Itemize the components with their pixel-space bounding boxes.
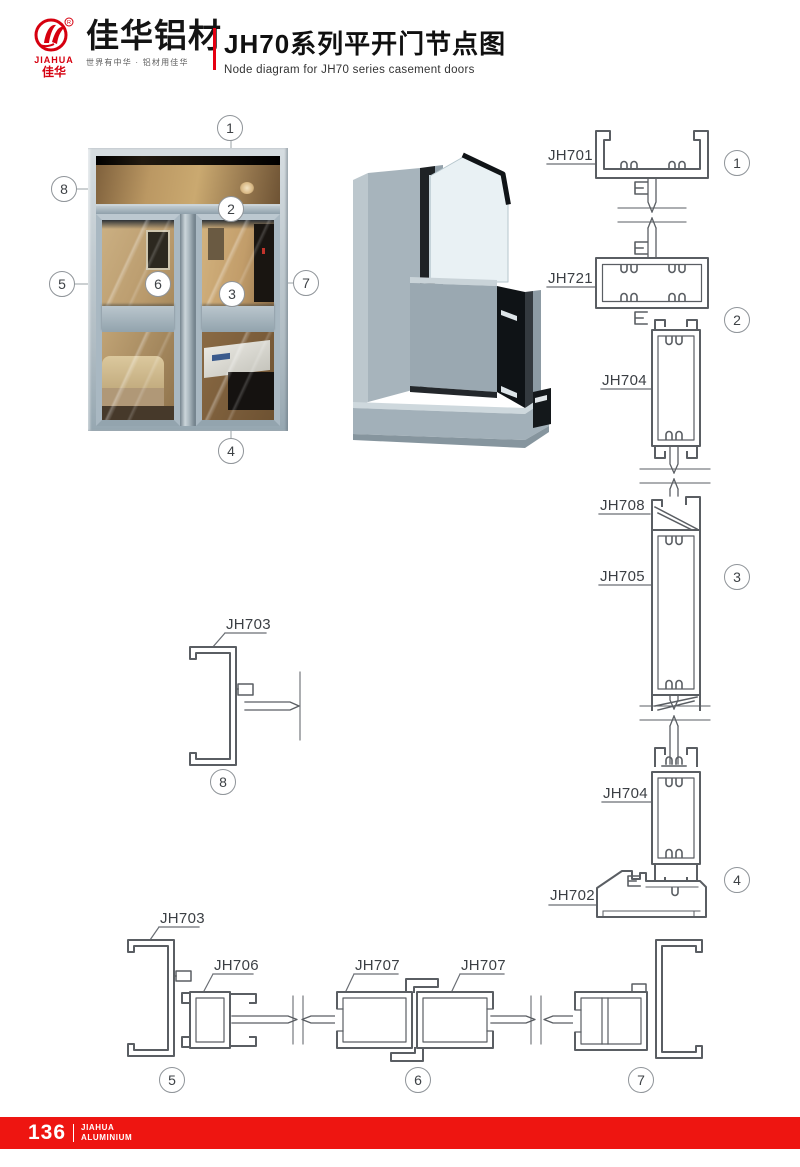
profile-label-jh703-mid: JH703 xyxy=(226,616,271,633)
left-mid-rail xyxy=(102,306,174,332)
transom-bevel xyxy=(96,156,280,165)
callout-2-section: 2 xyxy=(724,307,750,333)
footer-brand-line2: ALUMINIUM xyxy=(81,1133,132,1143)
footer-brand: JIAHUA ALUMINIUM xyxy=(81,1123,132,1143)
callout-3-section: 3 xyxy=(724,564,750,590)
callout-1-photo: 1 xyxy=(217,115,243,141)
callout-2-photo: 2 xyxy=(218,196,244,222)
callout-8-section: 8 xyxy=(210,769,236,795)
profile-label-jh704-lower: JH704 xyxy=(603,785,648,802)
callout-7-photo: 7 xyxy=(293,270,319,296)
profile-label-jh705: JH705 xyxy=(600,568,645,585)
profile-label-jh702: JH702 xyxy=(550,887,595,904)
right-door-leaf xyxy=(196,214,280,426)
profile-label-jh703-bottom: JH703 xyxy=(160,910,205,927)
product-photo xyxy=(88,148,288,431)
catalog-page: R JIAHUA 佳华 佳华铝材 世界有中华 · 铝材用佳华 JH70系列平开门… xyxy=(0,0,800,1167)
footer-page-number: 136 xyxy=(28,1121,66,1145)
callout-4-section: 4 xyxy=(724,867,750,893)
door-leaves xyxy=(96,214,280,426)
glass-reflection xyxy=(202,332,274,420)
footer-brand-line1: JIAHUA xyxy=(81,1123,132,1133)
left-lower-glass xyxy=(102,332,174,420)
ceiling-lamp xyxy=(240,182,254,194)
callout-4-photo: 4 xyxy=(218,438,244,464)
right-lower-glass xyxy=(202,332,274,420)
footer-bar: 136 JIAHUA ALUMINIUM xyxy=(0,1117,800,1149)
profile-label-jh704-upper: JH704 xyxy=(602,372,647,389)
diagram-area: JH701 JH721 JH704 JH708 JH705 JH704 JH70… xyxy=(0,0,800,1167)
profile-label-jh707-right: JH707 xyxy=(461,957,506,974)
callout-6-photo: 6 xyxy=(145,271,171,297)
profile-label-jh721: JH721 xyxy=(548,270,593,287)
footer-divider xyxy=(73,1124,74,1142)
meeting-stile xyxy=(180,214,196,426)
callout-7-section: 7 xyxy=(628,1067,654,1093)
profile-label-jh706: JH706 xyxy=(214,957,259,974)
callout-8-photo: 8 xyxy=(51,176,77,202)
callout-3-photo: 3 xyxy=(219,281,245,307)
transom-window xyxy=(96,156,280,204)
glass-reflection xyxy=(102,332,174,420)
left-door-leaf xyxy=(96,214,180,426)
callout-1-section: 1 xyxy=(724,150,750,176)
callout-5-section: 5 xyxy=(159,1067,185,1093)
callout-6-section: 6 xyxy=(405,1067,431,1093)
transom-rail xyxy=(96,206,280,214)
profile-label-jh708: JH708 xyxy=(600,497,645,514)
right-mid-rail xyxy=(202,306,274,332)
profile-label-jh707-left: JH707 xyxy=(355,957,400,974)
callout-5-photo: 5 xyxy=(49,271,75,297)
profile-label-jh701: JH701 xyxy=(548,147,593,164)
